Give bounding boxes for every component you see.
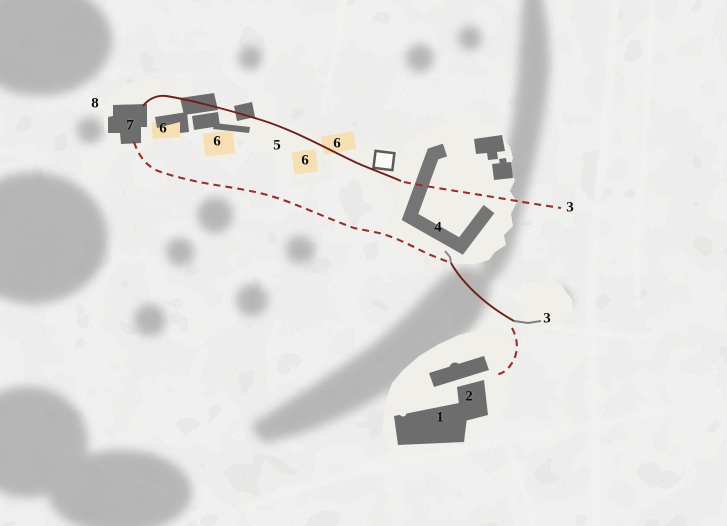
label-area-4: 4 bbox=[434, 221, 442, 236]
outlined-square-plot bbox=[373, 151, 394, 170]
label-area-6-d: 6 bbox=[333, 137, 341, 152]
building-2-rotunda bbox=[450, 363, 461, 374]
label-area-6-c: 6 bbox=[301, 154, 309, 169]
label-area-3-east: 3 bbox=[566, 201, 574, 216]
label-area-7: 7 bbox=[126, 119, 134, 134]
label-area-6-b: 6 bbox=[213, 135, 221, 150]
photo-grain bbox=[0, 0, 727, 526]
label-area-6-a: 6 bbox=[159, 122, 167, 137]
building-1-courtyard bbox=[400, 410, 407, 417]
aerial-basemap bbox=[0, 0, 727, 526]
label-area-8: 8 bbox=[91, 97, 99, 112]
label-area-1: 1 bbox=[436, 411, 444, 426]
label-area-3-bridge: 3 bbox=[543, 312, 551, 327]
label-area-2: 2 bbox=[465, 390, 473, 405]
label-area-5: 5 bbox=[273, 139, 281, 154]
site-plan-figure: 1 2 3 3 4 5 6 6 6 6 7 8 bbox=[0, 0, 727, 526]
